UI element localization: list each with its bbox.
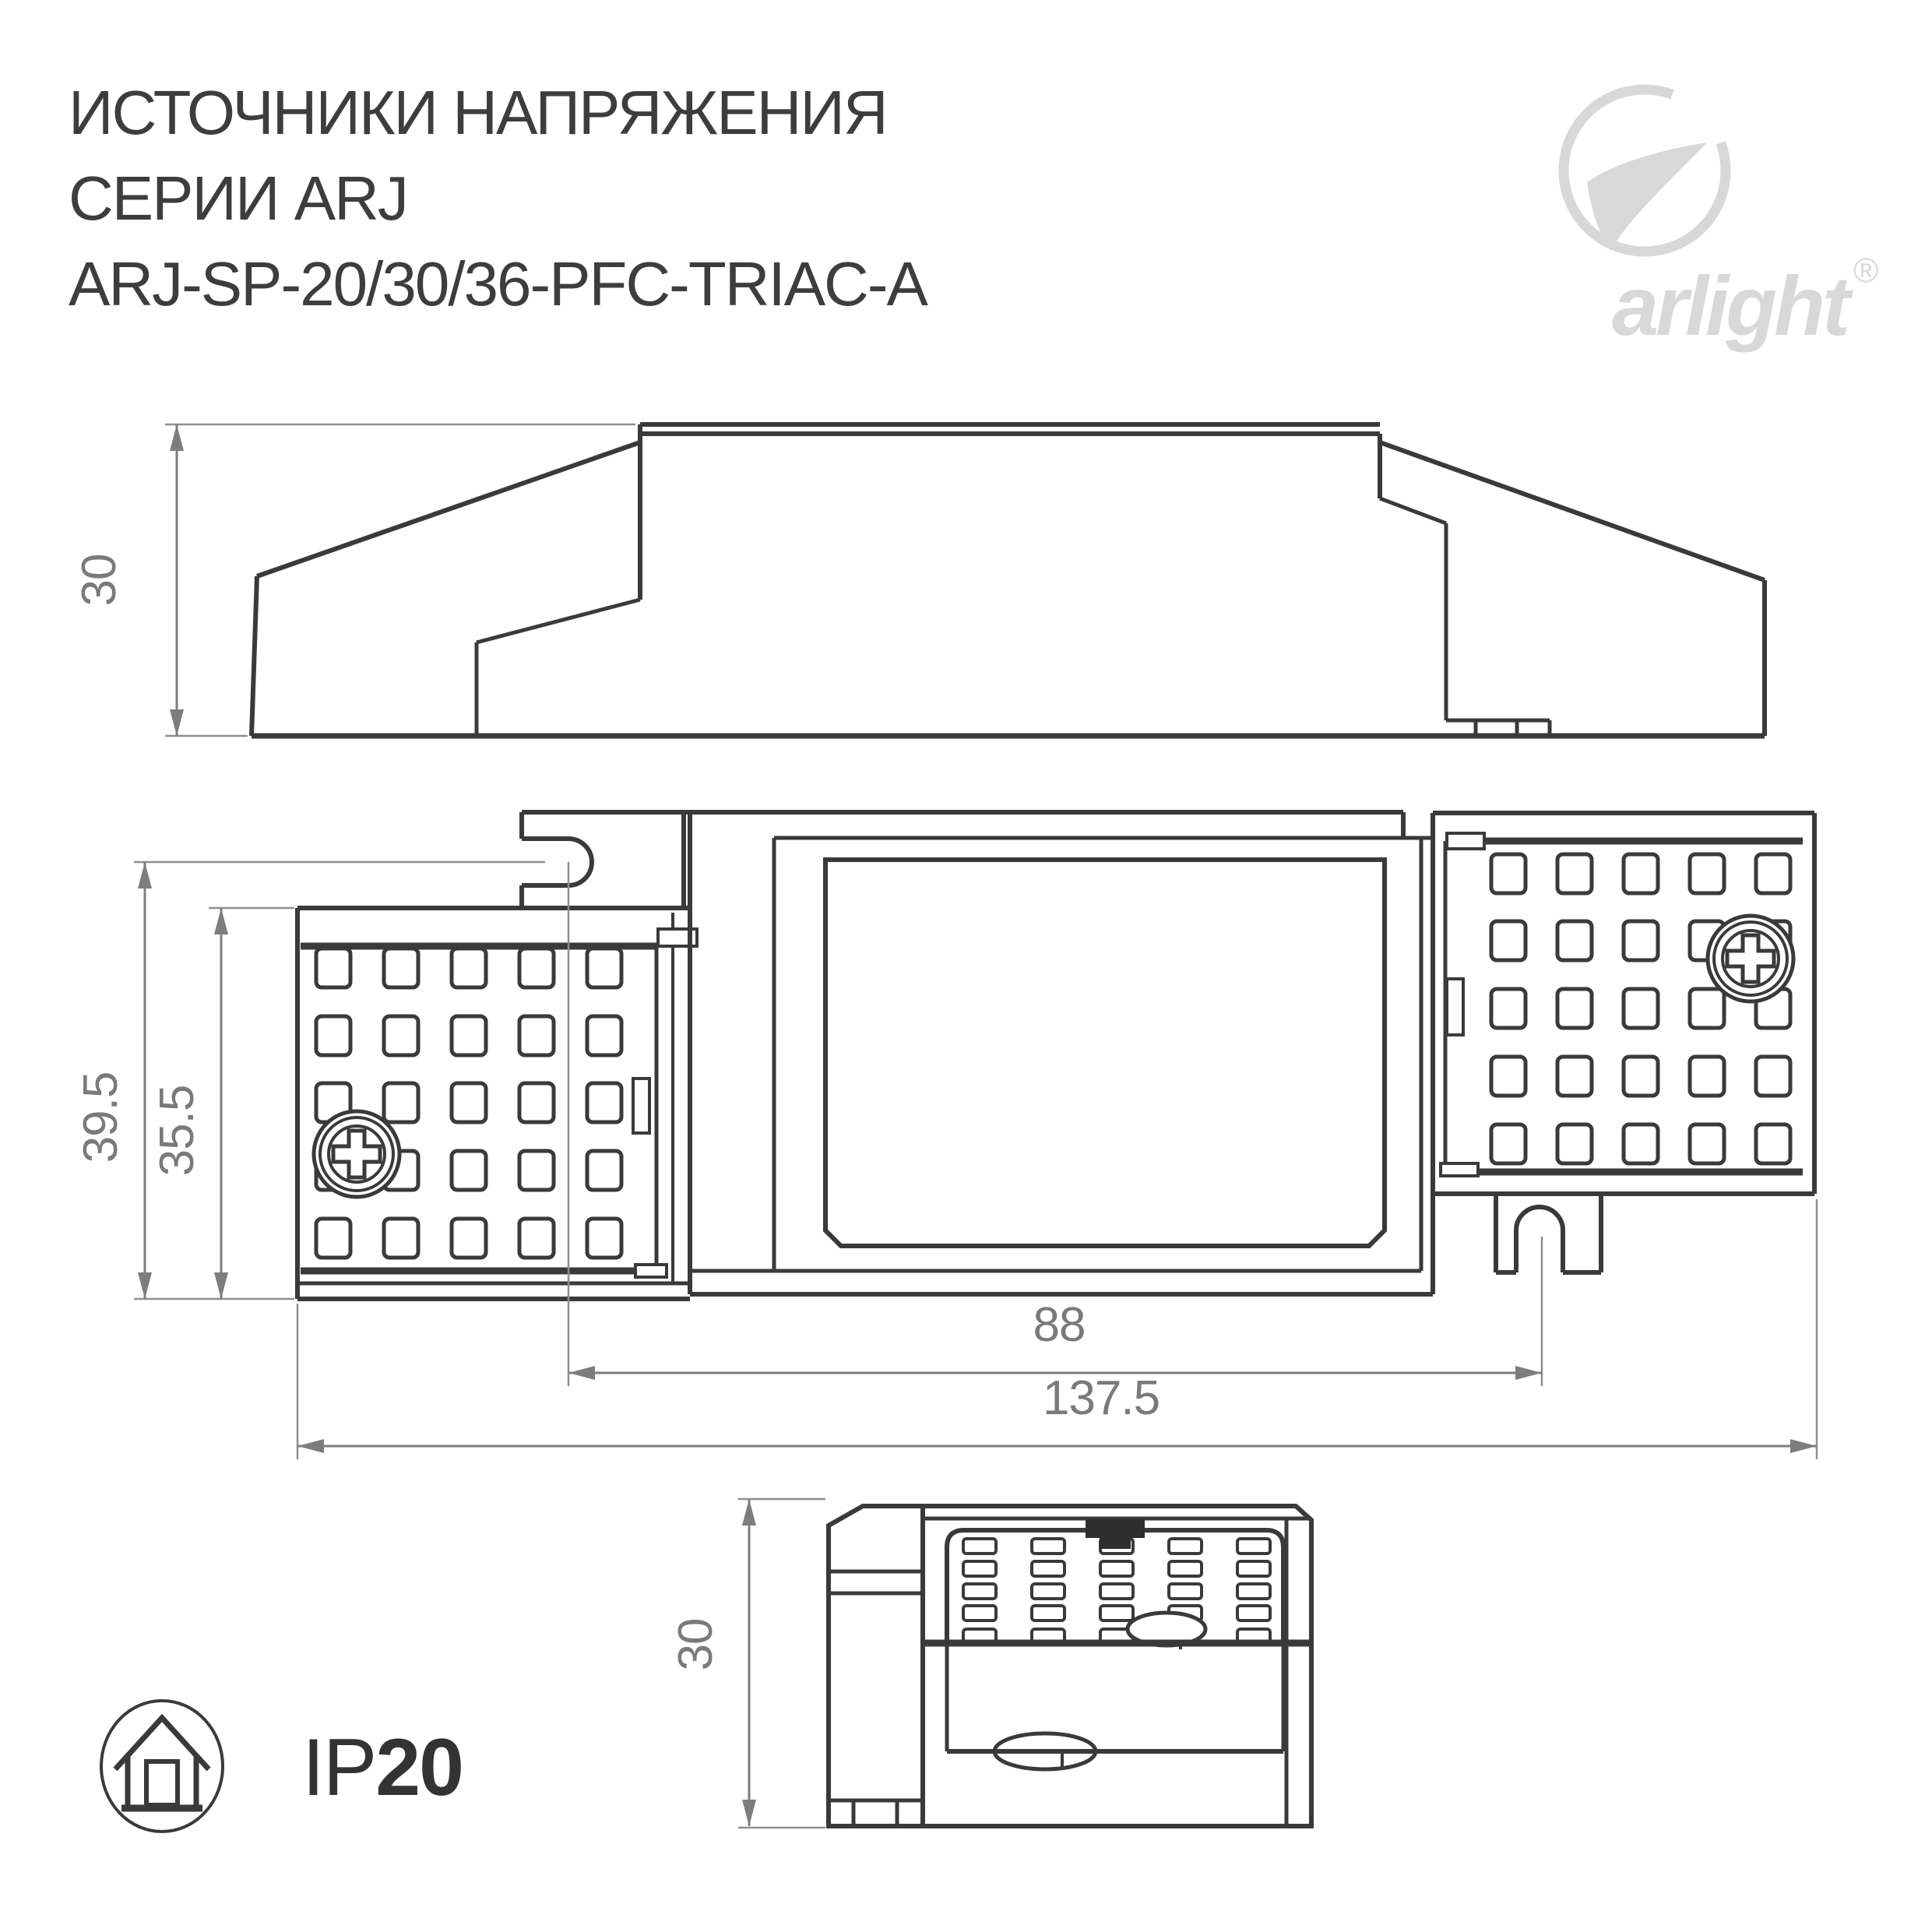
dim-label-side-height: 30 bbox=[72, 554, 126, 607]
cover-clip-bottom bbox=[1441, 1163, 1478, 1176]
dim-front-slot-spacing: 88 bbox=[568, 862, 1542, 1386]
side-profile-view bbox=[252, 424, 1765, 736]
label-area bbox=[825, 860, 1385, 1246]
page-title-line2: СЕРИИ ARJ bbox=[69, 164, 407, 233]
right-vent-grid bbox=[1491, 854, 1790, 1163]
cover-clip-side bbox=[1447, 979, 1463, 1035]
dim-front-total-height: 39.5 bbox=[74, 862, 545, 1299]
registered-mark: ® bbox=[1853, 252, 1878, 290]
phillips-screw-icon-left bbox=[314, 1111, 399, 1197]
dim-label-front-body-height: 35.5 bbox=[150, 1086, 204, 1177]
dim-label-front-slot-spacing: 88 bbox=[1033, 1298, 1086, 1352]
ip-prefix: IP bbox=[302, 1723, 375, 1813]
logo-wordmark: arlight bbox=[1612, 259, 1853, 353]
cover-clip-side bbox=[633, 1079, 649, 1133]
end-view bbox=[829, 1506, 1311, 1826]
phillips-screw-icon-right bbox=[1708, 916, 1793, 1001]
technical-drawing: ИСТОЧНИКИ НАПРЯЖЕНИЯ СЕРИИ ARJ ARJ-SP-20… bbox=[0, 0, 1932, 1932]
ip-rating-text: IP20 bbox=[302, 1723, 463, 1813]
cover-clip-top bbox=[1447, 833, 1484, 849]
arlight-logo: arlight ® bbox=[1564, 90, 1878, 353]
ip-value: 20 bbox=[375, 1723, 463, 1813]
front-central-section bbox=[690, 812, 1433, 1294]
indoor-house-icon bbox=[101, 1701, 223, 1832]
dim-front-body-height: 35.5 bbox=[150, 908, 294, 1299]
front-view bbox=[297, 812, 1814, 1299]
front-left-section bbox=[297, 908, 697, 1299]
page-title-line3: ARJ-SP-20/30/36-PFC-TRIAC-A bbox=[69, 249, 928, 318]
end-vent-slots bbox=[963, 1539, 1270, 1644]
front-right-section bbox=[1433, 813, 1814, 1194]
title-block: ИСТОЧНИКИ НАПРЯЖЕНИЯ СЕРИИ ARJ ARJ-SP-20… bbox=[69, 78, 928, 318]
left-vent-grid bbox=[316, 948, 621, 1258]
connector-tab-small bbox=[1100, 1538, 1131, 1549]
dim-label-front-total-height: 39.5 bbox=[74, 1072, 128, 1163]
mounting-tab-bottom bbox=[1496, 1194, 1601, 1272]
dim-end-height: 30 bbox=[669, 1499, 825, 1828]
page-title-line1: ИСТОЧНИКИ НАПРЯЖЕНИЯ bbox=[69, 78, 887, 147]
cover-clip-bottom bbox=[635, 1265, 667, 1277]
datasheet-page: ИСТОЧНИКИ НАПРЯЖЕНИЯ СЕРИИ ARJ ARJ-SP-20… bbox=[0, 0, 1932, 1932]
dim-label-front-total-width: 137.5 bbox=[1043, 1371, 1160, 1425]
connector-tab bbox=[1086, 1519, 1145, 1538]
ip-badge: IP20 bbox=[101, 1701, 463, 1832]
dim-label-end-height: 30 bbox=[669, 1619, 723, 1671]
